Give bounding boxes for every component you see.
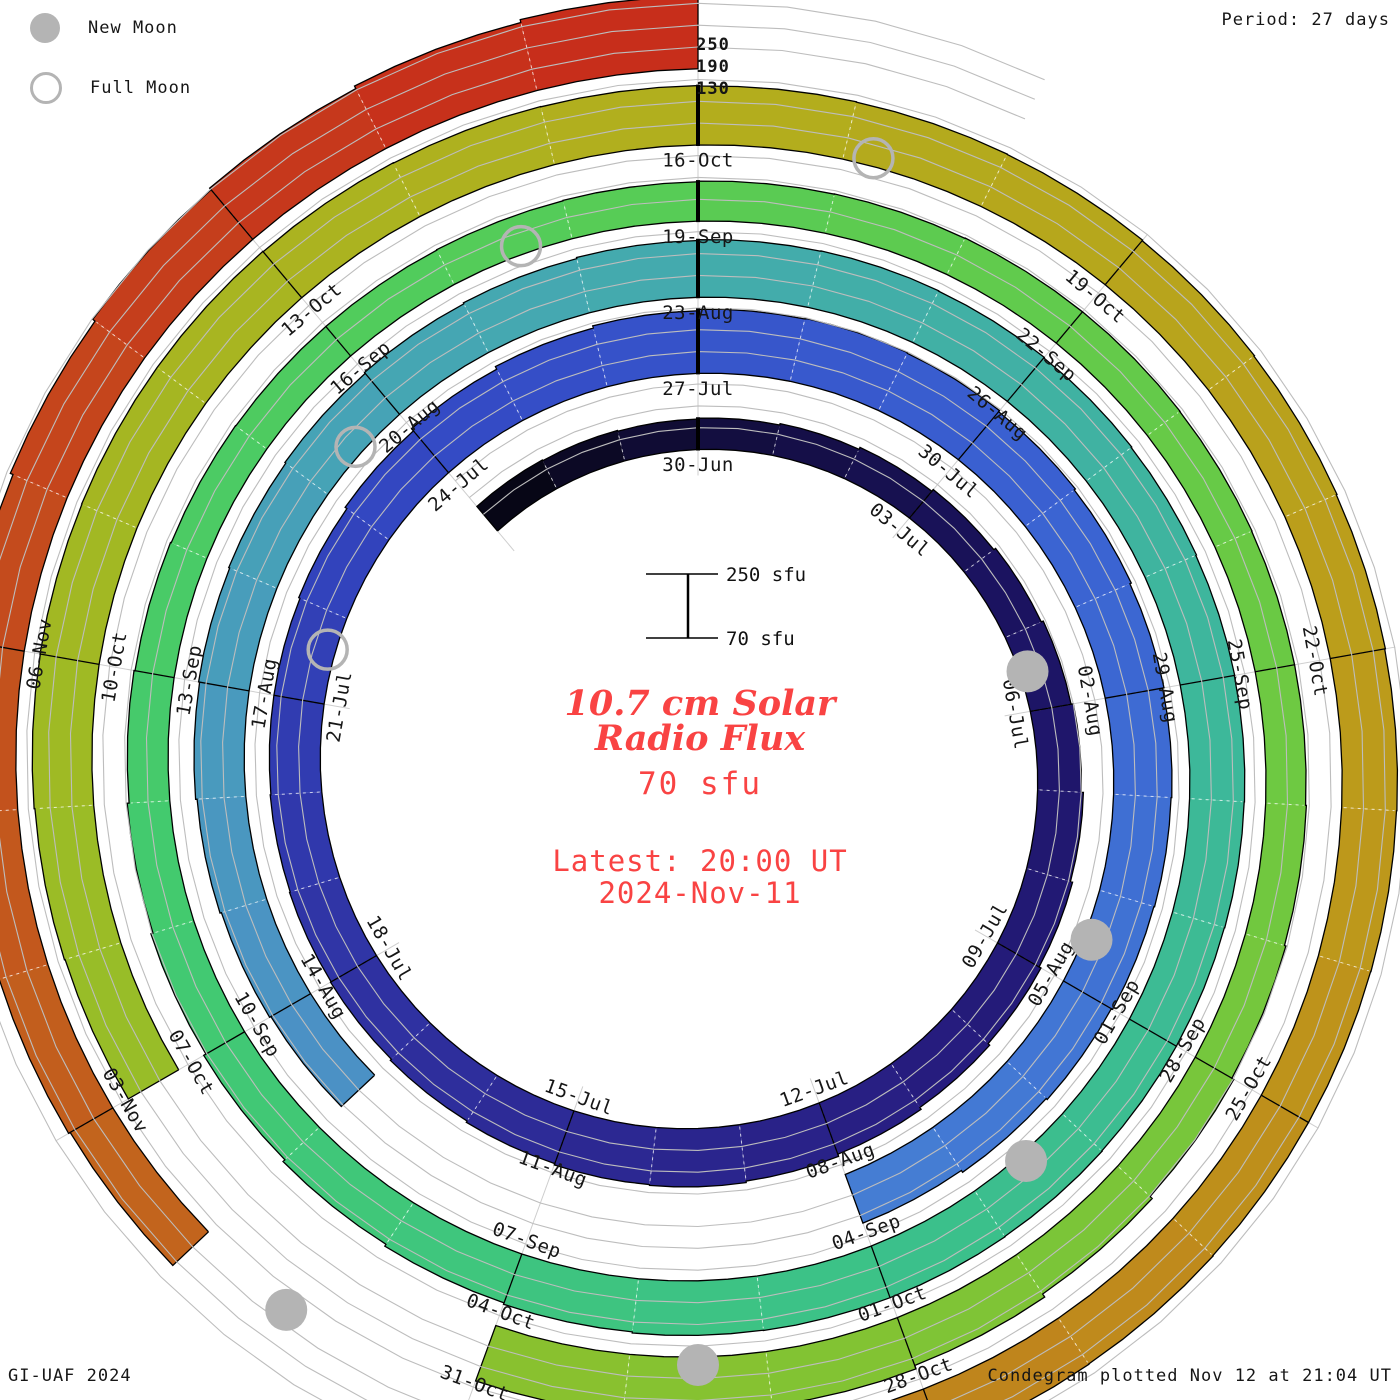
full-moon-icon [30,72,62,104]
flux-bar [543,431,625,489]
date-label: 23-Aug [662,302,734,324]
condegram-spiral: 30-Jun03-Jul06-Jul09-Jul12-Jul15-Jul18-J… [0,0,1400,1400]
flux-bar [632,1276,763,1335]
full-moon-label: Full Moon [90,78,191,98]
legend-new-moon: New Moon [30,13,178,43]
flux-bar [1245,803,1306,946]
date-label: 19-Sep [662,226,734,248]
date-label: 16-Oct [662,150,734,172]
new-moon-marker [1007,650,1049,692]
date-label: 27-Jul [662,378,734,400]
flux-bar [1100,794,1172,907]
flux-bar [283,1127,413,1244]
scale-bar: 250 sfu70 sfu [646,564,806,650]
flux-bar [773,424,860,479]
flux-bar [151,921,245,1054]
radial-axis-label-250: 250 [696,35,730,55]
radial-axis-label-190: 190 [696,57,730,77]
flux-bar [0,641,24,813]
flux-bar [194,682,249,799]
new-moon-marker [677,1344,719,1386]
radial-axis-label-130: 130 [696,79,730,99]
scale-bar-min-label: 70 sfu [726,628,795,650]
flux-bar [1318,808,1396,972]
flux-bar [1261,956,1370,1123]
flux-bar [650,1125,747,1187]
new-moon-marker [1005,1140,1047,1182]
new-moon-label: New Moon [88,18,178,38]
flux-bar [385,1203,522,1303]
condegram-figure: 30-Jun03-Jul06-Jul09-Jul12-Jul15-Jul18-J… [0,0,1400,1400]
legend-full-moon: Full Moon [30,72,191,104]
new-moon-icon [30,13,60,43]
plotted-timestamp-label: Condegram plotted Nov 12 at 21:04 UT [988,1366,1392,1386]
scale-bar-max-label: 250 sfu [726,564,806,586]
period-label: Period: 27 days [1221,10,1390,30]
flux-bar [843,102,1008,206]
new-moon-marker [1071,919,1113,961]
new-moon-marker [265,1289,307,1331]
credit-label: GI-UAF 2024 [8,1366,132,1386]
date-label: 30-Jun [662,454,734,476]
